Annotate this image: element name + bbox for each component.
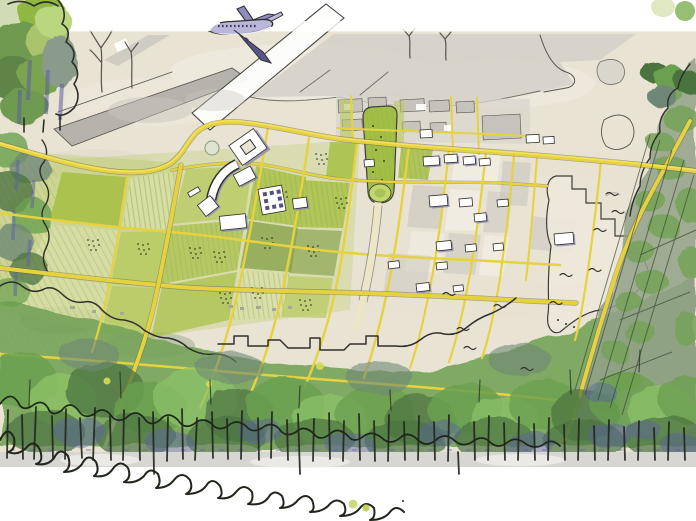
long-building [219, 214, 248, 233]
small-building [292, 197, 309, 211]
slide [0, 0, 696, 521]
tarmac-patch [108, 97, 192, 123]
masterplan-illustration [0, 0, 696, 521]
footer-speck [402, 500, 404, 502]
corner-dot-green [675, 1, 695, 21]
tarmac-patch [185, 89, 245, 111]
footer-dot-1 [349, 500, 358, 509]
footer-dot-2 [362, 504, 369, 511]
top-white-band [0, 21, 696, 32]
corner-dot-pale [651, 0, 675, 17]
unit-courtyard-building [258, 185, 286, 215]
mall-oval-inner [375, 189, 386, 198]
pond [205, 141, 219, 155]
